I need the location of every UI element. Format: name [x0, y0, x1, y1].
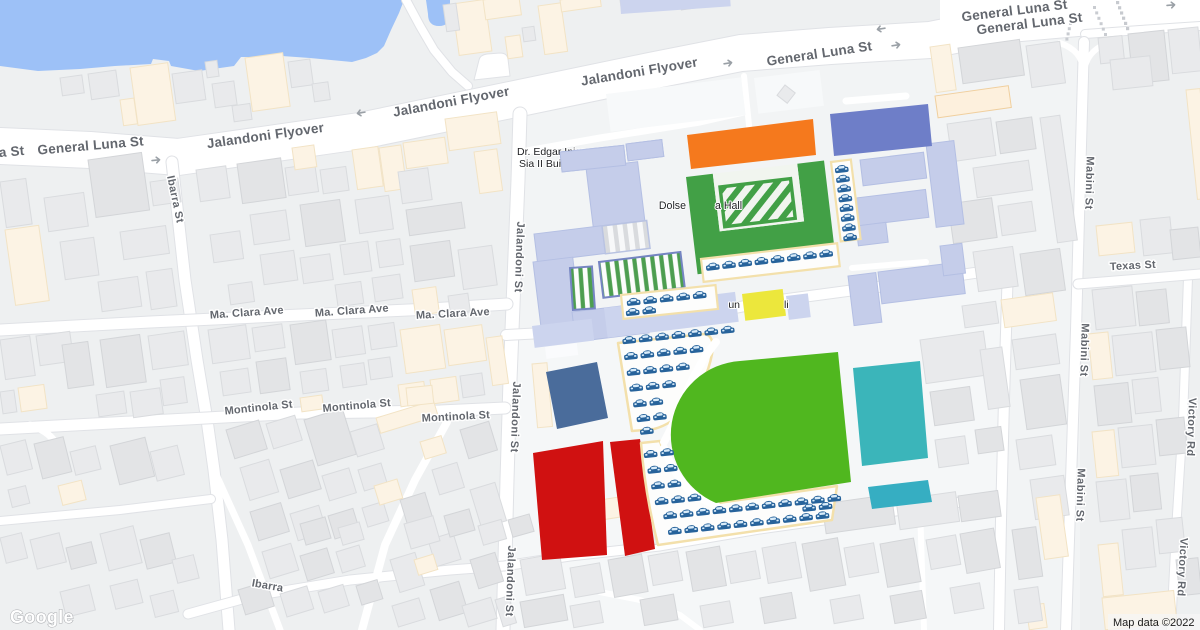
svg-text:Dolse: Dolse: [659, 200, 686, 212]
svg-text:li: li: [784, 299, 789, 311]
svg-text:a Hall: a Hall: [715, 200, 742, 212]
svg-text:Jalandoni St: Jalandoni St: [508, 381, 522, 453]
svg-text:Google: Google: [10, 607, 74, 627]
svg-text:un: un: [728, 299, 740, 311]
svg-text:a St: a St: [0, 143, 25, 160]
svg-text:Texas St: Texas St: [1110, 259, 1157, 273]
svg-text:Victory Rd: Victory Rd: [1184, 398, 1198, 457]
svg-text:Mabini St: Mabini St: [1073, 468, 1086, 522]
svg-text:Mabini St: Mabini St: [1082, 156, 1095, 210]
svg-text:Map data ©2022: Map data ©2022: [1113, 617, 1195, 629]
svg-text:Jalandoni St: Jalandoni St: [503, 545, 517, 617]
svg-text:Jalandoni St: Jalandoni St: [512, 221, 526, 293]
svg-text:Mabini St: Mabini St: [1077, 323, 1090, 377]
